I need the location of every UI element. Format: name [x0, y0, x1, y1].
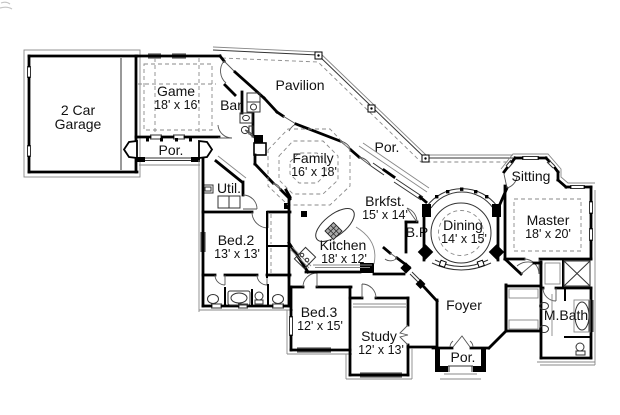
- svg-text:Foyer: Foyer: [446, 297, 482, 313]
- svg-text:14' x 15': 14' x 15': [441, 232, 487, 246]
- svg-text:Study: Study: [361, 328, 397, 344]
- svg-text:12' x 13': 12' x 13': [358, 343, 404, 357]
- svg-text:Game: Game: [157, 83, 195, 99]
- svg-text:Garage: Garage: [55, 116, 102, 132]
- svg-text:18' x 12': 18' x 12': [321, 252, 367, 266]
- svg-text:Kitchen: Kitchen: [320, 237, 367, 253]
- svg-text:Por.: Por.: [375, 139, 400, 155]
- svg-text:Bar: Bar: [220, 97, 242, 113]
- svg-text:13' x 13': 13' x 13': [214, 247, 260, 261]
- svg-text:12' x 15': 12' x 15': [297, 319, 343, 333]
- svg-text:Dining: Dining: [443, 217, 483, 233]
- svg-text:Pavilion: Pavilion: [275, 77, 324, 93]
- svg-text:Util.: Util.: [217, 180, 241, 196]
- svg-text:Master: Master: [527, 212, 570, 228]
- svg-text:Bed.2: Bed.2: [218, 232, 255, 248]
- svg-text:16' x 18': 16' x 18': [291, 165, 337, 179]
- svg-text:Sitting: Sitting: [512, 168, 551, 184]
- svg-text:Por.: Por.: [451, 349, 476, 365]
- svg-text:Bed.3: Bed.3: [301, 304, 338, 320]
- svg-text:Family: Family: [292, 150, 333, 166]
- svg-text:18' x 20': 18' x 20': [525, 227, 571, 241]
- svg-text:15' x 14': 15' x 14': [362, 208, 408, 222]
- svg-text:18' x 16': 18' x 16': [154, 98, 200, 112]
- svg-text:M.Bath: M.Bath: [544, 307, 588, 323]
- svg-text:Por.: Por.: [159, 142, 184, 158]
- svg-text:Brkfst.: Brkfst.: [365, 193, 405, 209]
